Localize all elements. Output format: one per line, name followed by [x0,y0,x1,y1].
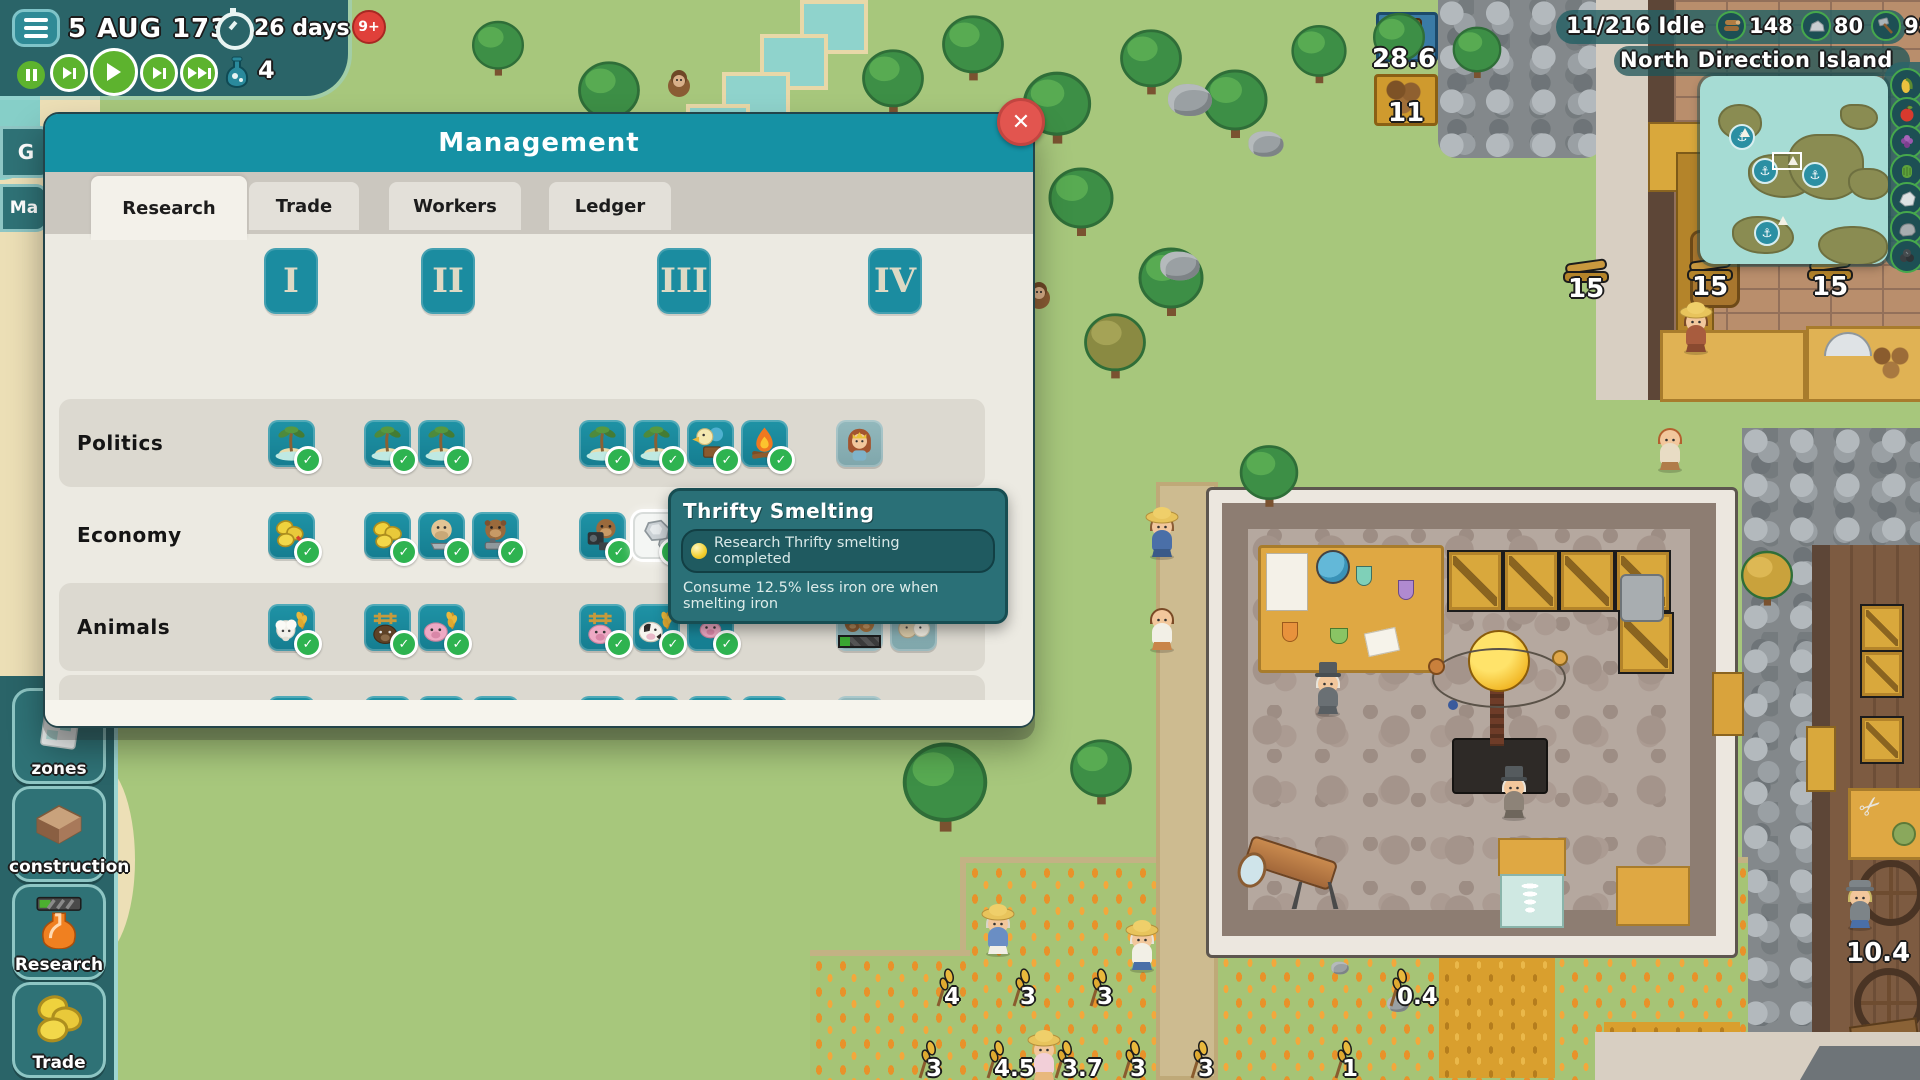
minimap-ship [1778,216,1788,225]
research-item-campfire[interactable]: ✓ [741,420,788,467]
research-item-beaver-plane[interactable]: ✓ [472,512,519,559]
research-building-door[interactable] [1712,672,1744,736]
tailor-door[interactable] [1806,726,1836,792]
resource-value: 95 [1904,14,1920,38]
flask-orange [1282,622,1298,642]
completed-check-icon: ✓ [713,630,741,658]
minimap-island [1818,226,1888,264]
completed-check-icon: ✓ [605,538,633,566]
completed-check-icon: ✓ [659,446,687,474]
wheat-count-label: 3 [1130,1056,1146,1080]
row-label-economy: Economy [77,523,182,547]
play-icon[interactable] [90,48,138,96]
wheat-crop: 3 [1116,1040,1146,1080]
flask-purple [1398,580,1414,600]
wheat-count-label: 3 [1097,984,1113,1010]
research-item-palm-island[interactable]: ✓ [364,420,411,467]
tree [1733,542,1802,619]
play-step-icon[interactable] [50,54,88,92]
villager[interactable] [1122,918,1162,978]
wheat-count-label: 3.7 [1062,1056,1103,1080]
resource-counter: 95 [1871,11,1920,41]
resource-counters: 148809559 [1716,11,1920,41]
completed-check-icon: ✓ [390,446,418,474]
tree [1074,302,1156,393]
wheat-count-label: 4.5 [994,1056,1035,1080]
rock [1248,131,1283,157]
wheat-crop: 1 [1328,1040,1358,1080]
timer-label: 26 days [254,16,350,41]
research-item-palm-island[interactable]: ✓ [633,420,680,467]
tooltip-status: Research Thrifty smelting completed [681,529,995,573]
research-item-pig-fence[interactable]: ✓ [579,604,626,651]
plank-count-label: 15 [1692,272,1728,302]
rock [1160,252,1200,281]
crate [1860,716,1904,764]
log-count-label: 11 [1388,98,1424,128]
lightbulb-icon [691,543,707,559]
pause-icon[interactable] [14,58,48,92]
minimap-ship [1740,128,1750,137]
sidebar-button-research[interactable]: Research [12,884,106,980]
tree [1038,156,1124,252]
tier-header-II: II [421,248,475,314]
row-label-politics: Politics [77,431,163,455]
dialog-footer [45,700,1033,726]
wheat-count-label: 3 [1198,1056,1214,1080]
research-item-palm-island[interactable]: ✓ [579,420,626,467]
flask-count: 4 [258,56,275,84]
close-button[interactable]: ✕ [997,98,1045,146]
wheat-crop: 4.5 [980,1040,1010,1080]
game-screen: ✂ [0,0,1920,1080]
tree [464,12,533,89]
villager[interactable] [1676,300,1716,360]
row-label-animals: Animals [77,615,170,639]
tree [889,728,1001,853]
sidebar-button-label: zones [9,759,109,779]
wheat-crop: 3 [1006,968,1036,1012]
notification-badge[interactable]: 9+ [352,10,386,44]
orrery-ring [1432,648,1566,708]
wheat-crop: 3.7 [1048,1040,1078,1080]
resource-value: 80 [1834,14,1863,38]
plank-count-label: 15 [1812,272,1848,302]
tailor-wall [1812,545,1830,1080]
minimap-island [1840,104,1878,130]
research-tree: IIIIIIIVPolitics✓✓✓✓✓✓✓Economy✓✓✓✓✓✓Anim… [45,234,1033,700]
wheat-crop: 4 [930,968,960,1012]
close-icon: ✕ [1012,110,1030,135]
sidebar-button-label: Trade [9,1053,109,1073]
research-item-sheep-wheat[interactable]: ✓ [268,604,315,651]
completed-check-icon: ✓ [605,630,633,658]
hamburger-icon [24,26,48,30]
minimap-island [1848,168,1888,200]
villager[interactable] [1142,505,1182,565]
rock [1331,962,1349,975]
tier-header-I: I [264,248,318,314]
tree [1230,435,1307,521]
log-stack [1872,346,1912,380]
dialog-title-bar: Management [45,114,1033,172]
completed-check-icon: ✓ [767,446,795,474]
sidebar-button-label: Research [9,955,109,975]
idle-count: 11/216 Idle [1566,14,1705,39]
tree [1060,728,1142,819]
tooltip-description: Consume 12.5% less iron ore when smeltin… [683,580,993,612]
tailor-count-label: 10.4 [1846,938,1910,968]
fast-forward-icon[interactable] [140,54,178,92]
resource-value: 148 [1749,14,1793,38]
fastest-icon[interactable] [180,54,218,92]
dialog-tabs: ResearchTradeWorkersLedger [45,172,1033,234]
research-item-palm-island[interactable]: ✓ [268,420,315,467]
sidebar-button-label: construction [9,857,109,877]
crate [1447,550,1503,612]
villager[interactable] [1840,876,1880,936]
tree [1282,15,1355,97]
monkey [662,66,696,104]
completed-check-icon: ✓ [390,538,418,566]
mature-wheat-block [1439,945,1555,1078]
minimap-anchor-icon: ⚓ [1802,162,1828,188]
plank-stack: 15 [1560,258,1612,292]
sidebar-button-trade[interactable]: Trade [12,982,106,1078]
research-item-beaver-camera[interactable]: ✓ [579,512,626,559]
research-item-coins-tax[interactable]: ✓ [268,512,315,559]
villager[interactable] [1142,598,1182,658]
research-progress-bar [838,635,881,648]
management-dialog: Management ✕ ResearchTradeWorkersLedger … [43,112,1035,728]
wheat-count-label: 0.4 [1397,984,1438,1010]
completed-check-icon: ✓ [390,630,418,658]
completed-check-icon: ✓ [713,446,741,474]
research-item-coins[interactable]: ✓ [364,512,411,559]
research-item-herald-horn[interactable]: ✓ [687,420,734,467]
tools-icon [1871,11,1901,41]
completed-check-icon: ✓ [444,630,472,658]
orrery-planet [1448,700,1458,710]
completed-check-icon: ✓ [444,446,472,474]
completed-check-icon: ✓ [659,630,687,658]
villager[interactable] [1308,662,1348,722]
left-edge-tab-ma[interactable]: Ma [0,184,48,232]
left-edge-tab-label: Ma [10,198,38,218]
well-count-label: 28.6 [1372,44,1436,74]
tab-research[interactable]: Research [91,176,247,240]
villager[interactable] [1650,418,1690,478]
orrery-planet [1428,658,1445,675]
crate [1559,550,1615,612]
tooltip-status-text: Research Thrifty smelting completed [714,535,981,567]
research-item-palm-island[interactable]: ✓ [418,420,465,467]
wheat-count-label: 3 [926,1056,942,1080]
tab-workers[interactable]: Workers [389,182,521,230]
completed-check-icon: ✓ [605,446,633,474]
flask-teal [1356,566,1372,586]
wheat-count-label: 4 [944,984,960,1010]
hamburger-icon [24,34,48,38]
research-item-pig-wheat[interactable]: ✓ [418,604,465,651]
research-item-walrus-saw[interactable]: ✓ [418,512,465,559]
side-desk [1616,866,1690,926]
wheat-count-label: 1 [1342,1056,1358,1080]
villager[interactable] [978,902,1018,962]
resource-counter: 148 [1716,11,1793,41]
flask-green [1330,628,1348,644]
wheat-crop: 3 [1184,1040,1214,1080]
crate [1860,650,1904,698]
tier-header-IV: IV [868,248,922,314]
telescope-tripod [1292,882,1339,909]
rock [1168,84,1212,116]
tooltip-title: Thrifty Smelting [683,499,995,523]
wood-icon [1716,11,1746,41]
yarn-ball [1892,822,1916,846]
tree [932,4,1014,95]
fossil-desk [1498,838,1566,876]
research-item-boar-fence[interactable]: ✓ [364,604,411,651]
hamburger-icon [24,18,48,22]
map-on-table [1266,553,1308,611]
wheat-crop: 3 [1083,968,1113,1012]
villager[interactable] [1494,766,1534,826]
sidebar-button-construction[interactable]: construction [12,786,106,882]
resource-counter: 80 [1801,11,1863,41]
stone-icon [1801,11,1831,41]
crate [1503,550,1559,612]
completed-check-icon: ✓ [444,538,472,566]
entry-wedge [1800,1046,1920,1080]
wheat-crop: 0.4 [1383,968,1413,1012]
cobble-path-right-v [1742,428,1812,1034]
tab-ledger[interactable]: Ledger [549,182,671,230]
wheat-count-label: 3 [1020,984,1036,1010]
globe [1316,550,1350,584]
tier-header-III: III [657,248,711,314]
plank-count-label: 15 [1568,274,1604,304]
fossil-bones [1514,880,1546,916]
stopwatch-icon [216,12,254,50]
wheat-crop: 3 [912,1040,942,1080]
research-tooltip: Thrifty Smelting Research Thrifty smelti… [668,488,1008,624]
completed-check-icon: ✓ [294,630,322,658]
crate [1860,604,1904,652]
completed-check-icon: ✓ [294,446,322,474]
island-name: North Direction Island [1620,48,1893,72]
completed-check-icon: ✓ [294,538,322,566]
left-edge-tab-label: G [18,140,34,164]
tree [1445,18,1510,90]
minimap-anchor-icon: ⚓ [1754,220,1780,246]
dialog-title: Management [438,128,639,158]
minimap-ship [1788,156,1798,165]
metal-drum [1620,574,1664,622]
minimap[interactable]: ⚓⚓⚓⚓ [1700,76,1888,264]
orrery-planet [1552,650,1568,666]
menu-button[interactable] [12,9,60,47]
completed-check-icon: ✓ [498,538,526,566]
flask-icon [222,56,252,92]
tab-trade[interactable]: Trade [249,182,359,230]
coal-icon[interactable] [1890,239,1920,273]
research-item-queen[interactable] [836,420,883,467]
